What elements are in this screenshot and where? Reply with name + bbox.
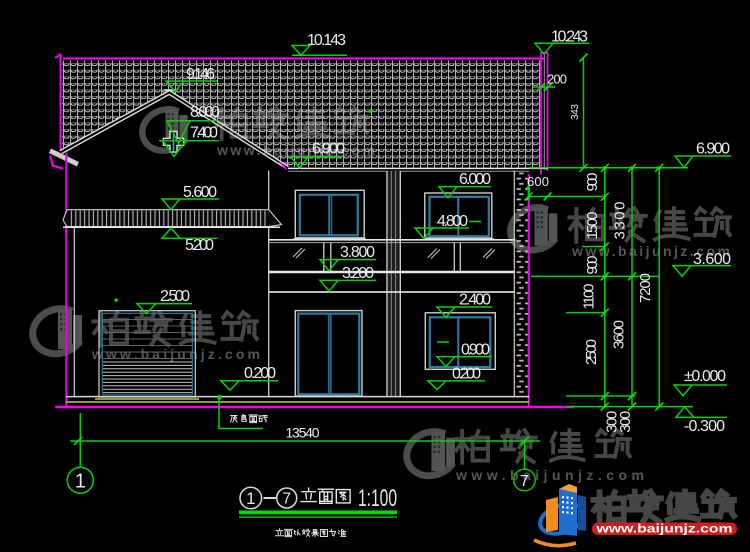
svg-text:2500: 2500 — [583, 339, 600, 365]
svg-text:1:100: 1:100 — [358, 485, 397, 512]
svg-text:7: 7 — [282, 491, 291, 508]
svg-text:0.900: 0.900 — [461, 342, 490, 359]
svg-text:9.146: 9.146 — [186, 66, 215, 83]
svg-text:1500: 1500 — [584, 212, 601, 240]
svg-text:3.800: 3.800 — [340, 244, 375, 261]
svg-text:1: 1 — [75, 471, 86, 493]
svg-text:600: 600 — [527, 174, 549, 189]
svg-text:1100: 1100 — [581, 284, 598, 310]
svg-text:300: 300 — [617, 411, 634, 433]
svg-text:6.900: 6.900 — [312, 141, 345, 158]
svg-text:8.000: 8.000 — [190, 104, 220, 121]
svg-text:-0.300: -0.300 — [684, 418, 725, 435]
svg-text:0.200: 0.200 — [452, 366, 481, 383]
svg-text:3.600: 3.600 — [693, 251, 731, 268]
svg-text:7: 7 — [520, 473, 529, 490]
svg-text:900: 900 — [584, 256, 601, 275]
svg-text:5.600: 5.600 — [183, 184, 217, 201]
svg-text:3300: 3300 — [612, 202, 629, 240]
svg-text:900: 900 — [584, 173, 601, 192]
svg-text:6.000: 6.000 — [459, 171, 491, 188]
svg-text:3600: 3600 — [611, 320, 628, 349]
svg-text:7.400: 7.400 — [190, 125, 218, 142]
svg-text:343: 343 — [570, 104, 581, 120]
svg-text:6.900: 6.900 — [696, 141, 730, 158]
svg-text:4.800: 4.800 — [437, 213, 468, 230]
svg-text:1: 1 — [246, 489, 255, 508]
svg-text:±0.000: ±0.000 — [684, 368, 726, 385]
svg-text:2.400: 2.400 — [459, 292, 491, 309]
svg-text:www.baijunjz.com: www.baijunjz.com — [595, 524, 732, 536]
svg-text:13540: 13540 — [286, 425, 320, 441]
svg-text:10.143: 10.143 — [307, 32, 346, 49]
svg-text:7200: 7200 — [637, 273, 654, 303]
svg-text:200: 200 — [547, 72, 567, 87]
svg-text:5.200: 5.200 — [185, 237, 214, 254]
svg-text:10.243: 10.243 — [551, 29, 588, 46]
svg-text:2.500: 2.500 — [160, 288, 190, 305]
svg-text:0.200: 0.200 — [244, 365, 276, 382]
svg-text:3.200: 3.200 — [342, 265, 374, 282]
